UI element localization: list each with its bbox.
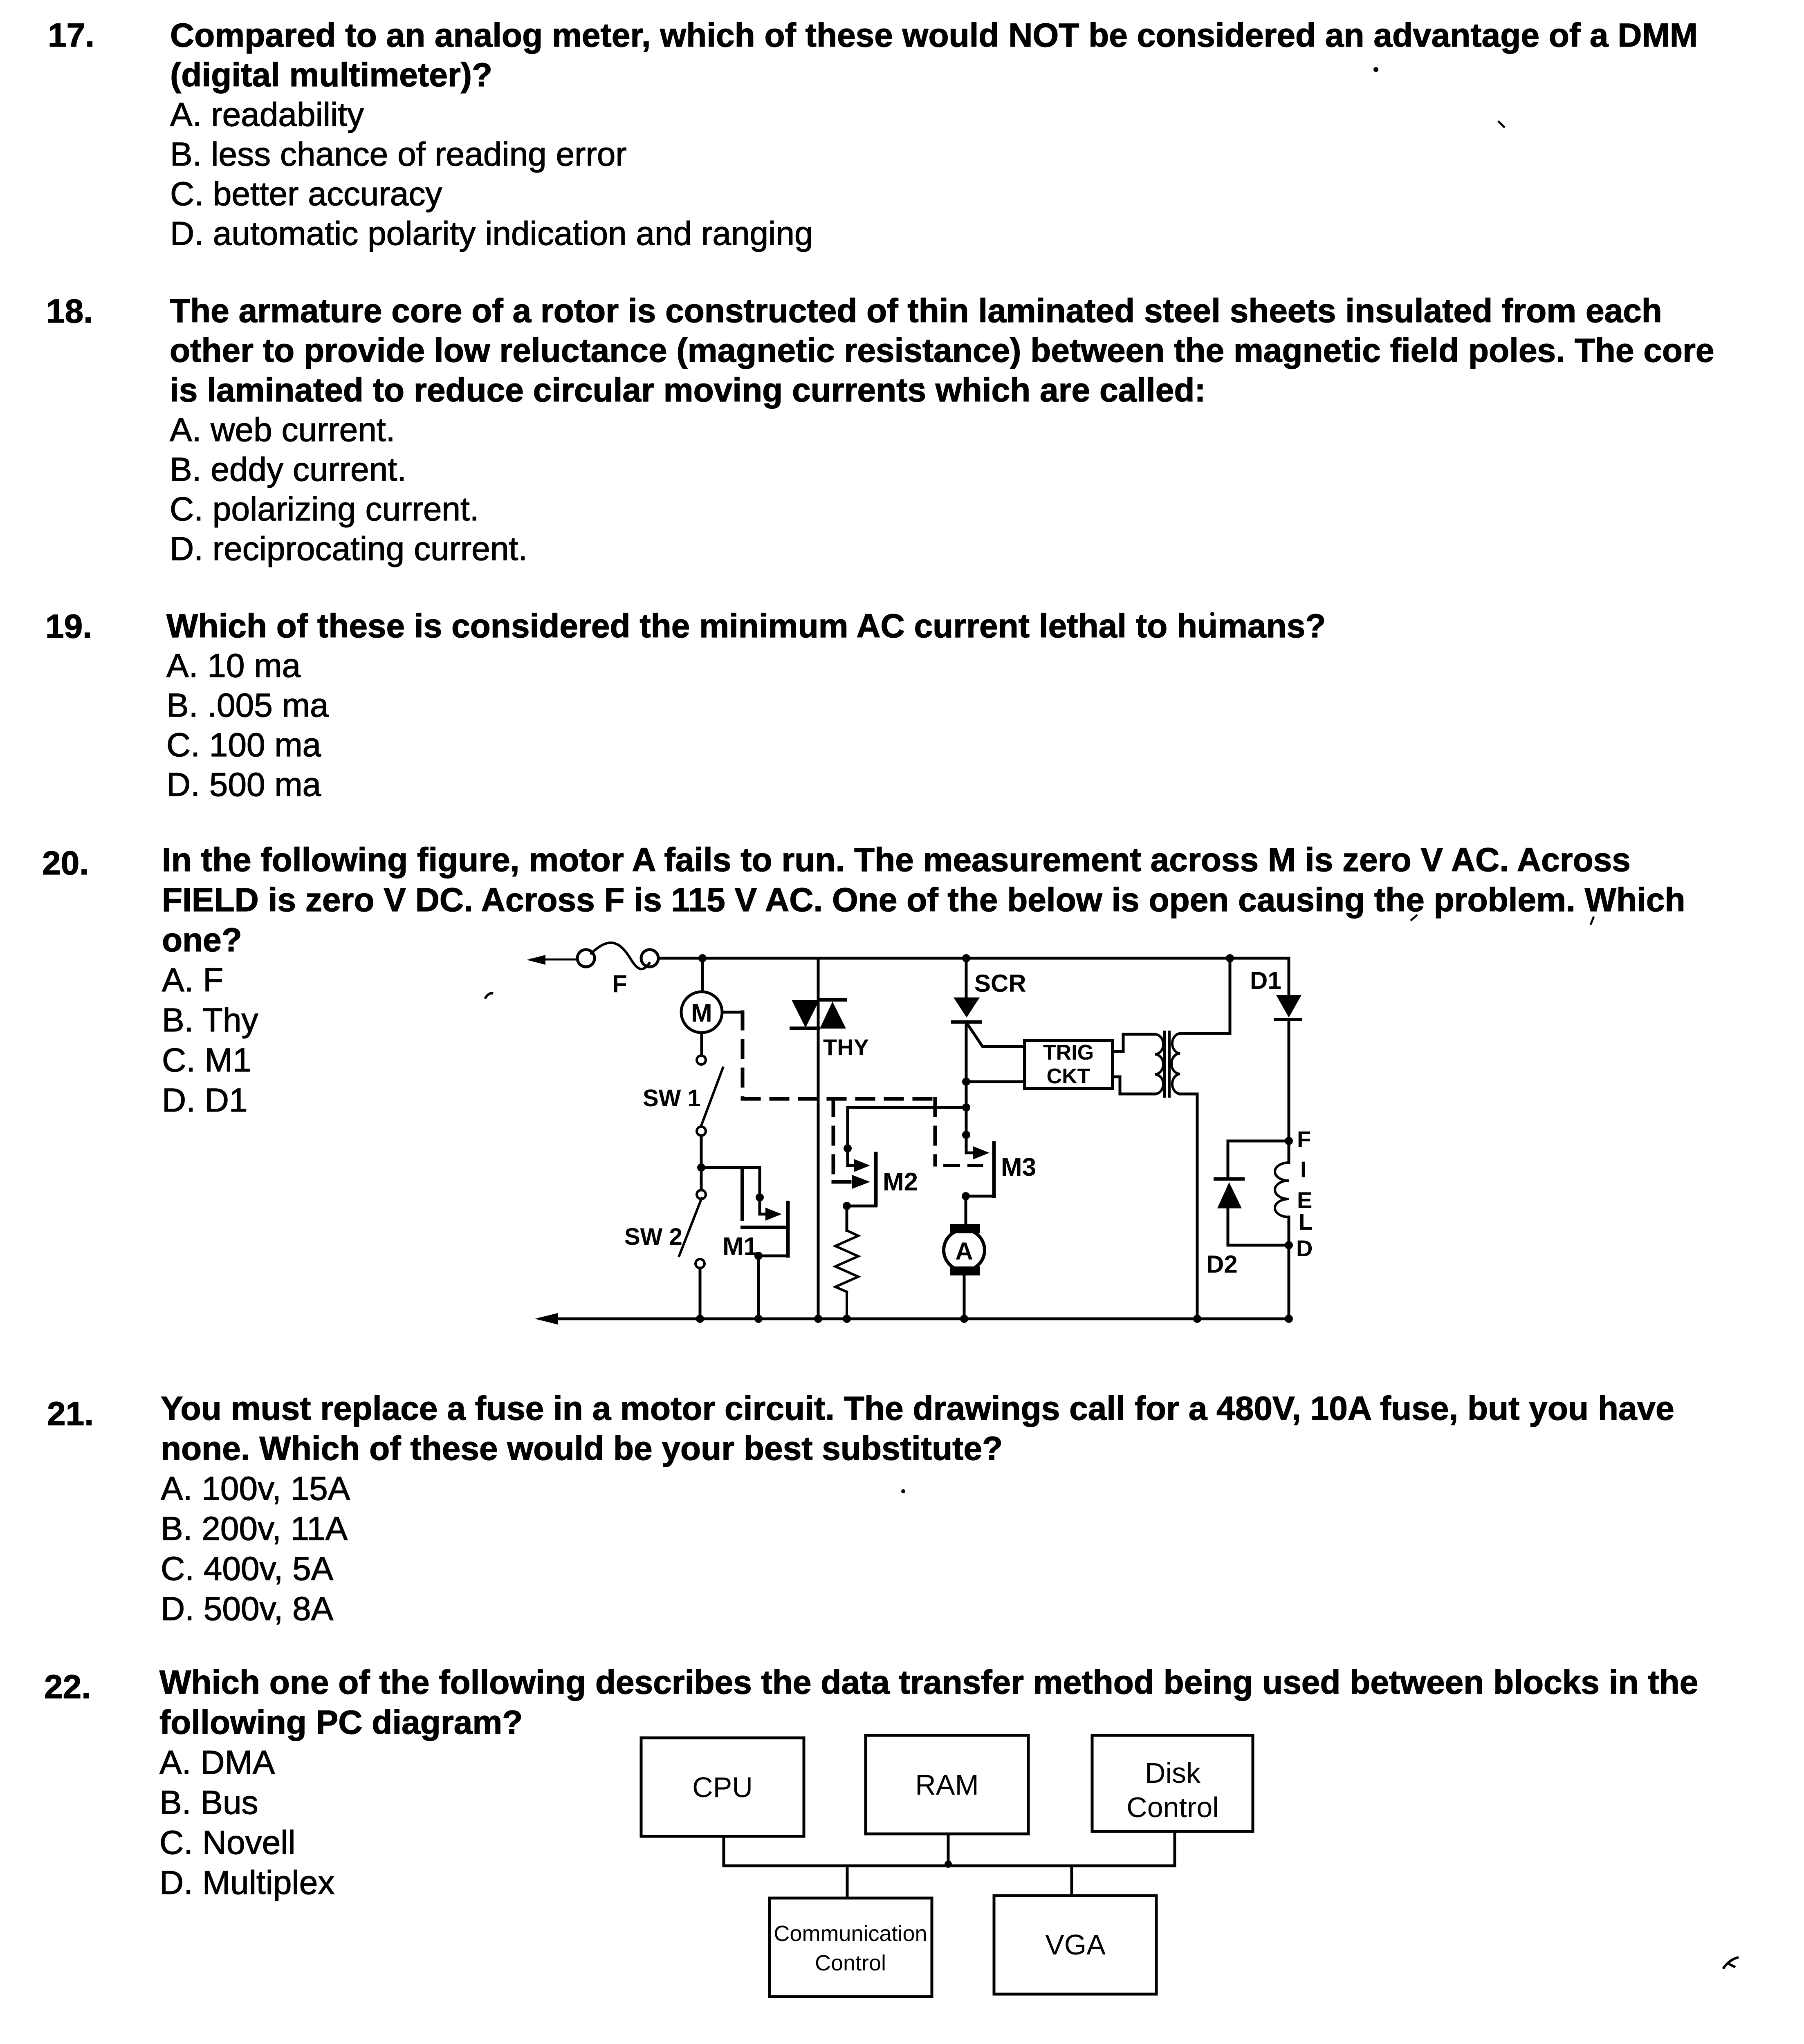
svg-text:Disk: Disk bbox=[1145, 1757, 1201, 1789]
svg-text:SCR: SCR bbox=[974, 970, 1026, 997]
svg-text:Communication: Communication bbox=[774, 1921, 927, 1946]
svg-text:RAM: RAM bbox=[915, 1769, 979, 1801]
svg-text:F: F bbox=[612, 970, 627, 997]
svg-text:D1: D1 bbox=[1250, 967, 1281, 994]
svg-text:A: A bbox=[955, 1237, 973, 1265]
svg-text:SW 2: SW 2 bbox=[624, 1224, 682, 1250]
svg-text:SW 1: SW 1 bbox=[643, 1085, 701, 1112]
svg-text:M: M bbox=[691, 999, 712, 1027]
svg-text:CKT: CKT bbox=[1047, 1065, 1090, 1088]
svg-text:F: F bbox=[1297, 1126, 1311, 1152]
svg-text:M3: M3 bbox=[1001, 1153, 1036, 1181]
svg-text:CPU: CPU bbox=[692, 1771, 753, 1803]
svg-text:M1: M1 bbox=[722, 1233, 758, 1261]
svg-text:D: D bbox=[1296, 1235, 1313, 1261]
svg-text:Control: Control bbox=[1126, 1791, 1219, 1823]
svg-text:THY: THY bbox=[823, 1034, 869, 1060]
svg-text:TRIG: TRIG bbox=[1043, 1041, 1094, 1065]
svg-text:D2: D2 bbox=[1206, 1251, 1238, 1278]
svg-text:VGA: VGA bbox=[1045, 1929, 1106, 1961]
svg-text:L: L bbox=[1299, 1209, 1313, 1235]
svg-text:Control: Control bbox=[815, 1951, 886, 1975]
svg-text:I: I bbox=[1300, 1156, 1307, 1182]
svg-text:M2: M2 bbox=[883, 1168, 918, 1196]
